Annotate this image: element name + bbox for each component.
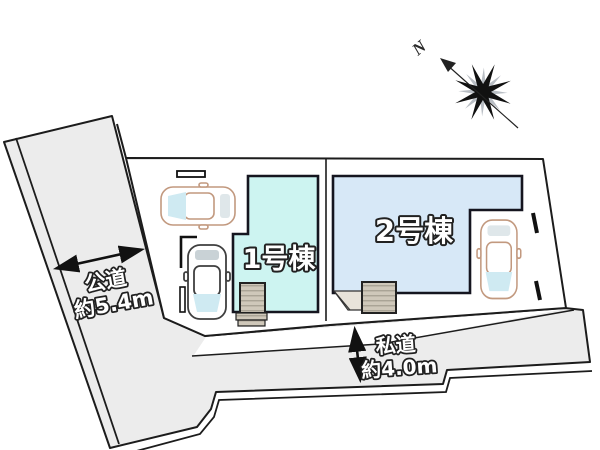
site-plan: N 1号棟 2号棟 公道 約5.4m 私道 約4.0m xyxy=(0,0,600,450)
parking-stop-bar xyxy=(177,171,205,177)
building-1-step-2 xyxy=(238,320,265,326)
building-1-step-1 xyxy=(236,313,267,320)
building-1-porch xyxy=(240,283,265,313)
building-2-label: 2号棟 xyxy=(375,214,454,248)
building-2-porch xyxy=(362,282,396,313)
car-icon xyxy=(477,220,521,298)
site-plan-svg: N 1号棟 2号棟 公道 約5.4m 私道 約4.0m xyxy=(0,0,600,450)
building-1-label: 1号棟 xyxy=(243,244,317,275)
parking-side-bar xyxy=(180,287,185,312)
car-icon xyxy=(184,245,230,319)
car-icon xyxy=(161,183,235,229)
